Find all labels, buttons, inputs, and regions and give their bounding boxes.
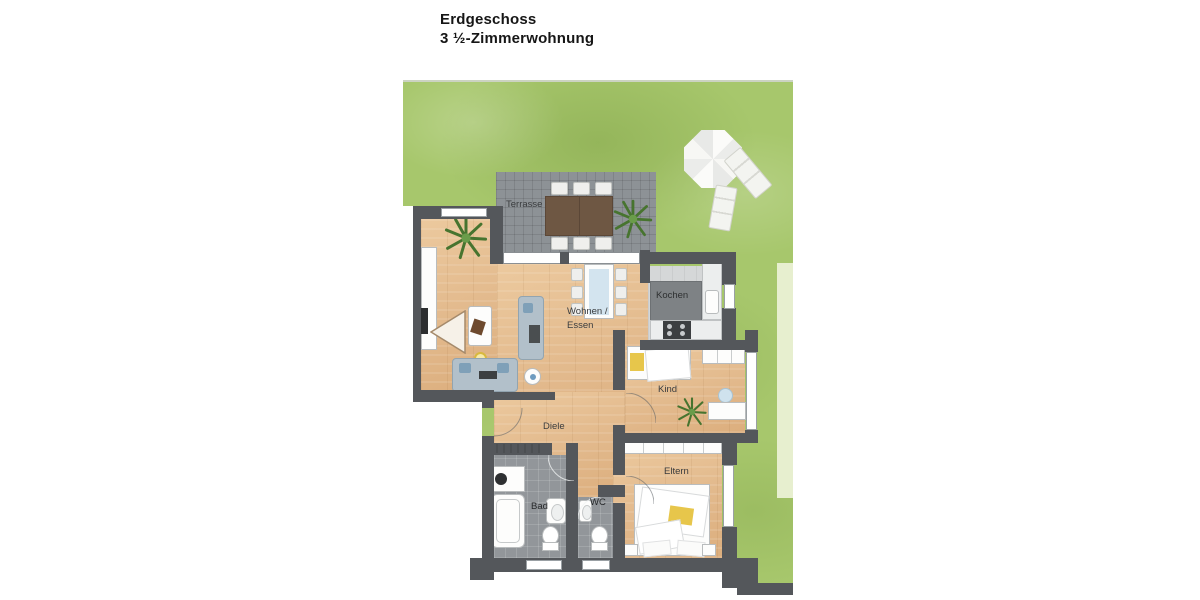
bathtub	[491, 494, 525, 548]
label-eltern: Eltern	[664, 466, 689, 477]
dining-chair	[615, 286, 627, 299]
tv-cone	[430, 310, 466, 354]
desk	[708, 402, 746, 420]
label-terrasse: Terrasse	[506, 199, 542, 210]
stove	[663, 321, 691, 339]
terrace-chair	[595, 182, 612, 195]
wall	[493, 392, 555, 400]
wall	[722, 252, 736, 285]
wall	[722, 443, 737, 465]
kitchen-sink	[705, 290, 719, 314]
bath-door-swing	[548, 455, 574, 481]
terrace-sliding-door	[503, 252, 640, 264]
label-kind: Kind	[658, 384, 677, 395]
label-kochen: Kochen	[656, 290, 688, 301]
chaise-longue	[518, 296, 544, 360]
garden-path	[777, 263, 793, 498]
wall	[470, 558, 494, 580]
coat-rack	[496, 444, 540, 453]
terrace-chair	[573, 182, 590, 195]
wall	[613, 433, 758, 443]
terrace-chair	[551, 182, 568, 195]
wall	[490, 206, 503, 264]
door-mullion	[560, 252, 569, 264]
side-table	[524, 368, 541, 385]
garden-wall	[737, 583, 793, 595]
parents-window	[723, 465, 734, 527]
toilet	[590, 526, 608, 550]
wall	[613, 330, 625, 390]
wall	[613, 503, 625, 558]
plant	[443, 215, 489, 261]
child-bed	[627, 346, 691, 380]
wall	[482, 390, 494, 408]
desk-chair	[718, 388, 733, 403]
dining-chair	[615, 303, 627, 316]
wall	[745, 330, 758, 352]
wall	[482, 436, 494, 578]
plan-title-line2: 3 ½-Zimmerwohnung	[440, 29, 594, 48]
terrace-chair	[595, 237, 612, 250]
nightstand	[624, 544, 638, 556]
label-diele: Diele	[543, 421, 565, 432]
dining-chair	[571, 286, 583, 299]
nightstand	[702, 544, 716, 556]
washing-machine	[491, 466, 525, 492]
tv	[421, 308, 428, 334]
sofa	[452, 358, 518, 392]
label-wohnen-essen-line2: Essen	[567, 320, 593, 331]
plant	[676, 396, 708, 428]
toilet	[541, 526, 559, 550]
terrace-chair	[573, 237, 590, 250]
washbasin	[546, 498, 566, 524]
wall	[722, 308, 736, 348]
wall	[413, 390, 493, 402]
entrance-door-swing	[494, 408, 523, 437]
kitchen-window	[724, 284, 735, 309]
label-wc: WC	[590, 497, 606, 508]
wall	[598, 485, 625, 497]
wc-window	[582, 560, 610, 570]
label-wohnen-essen-line1: Wohnen /	[567, 306, 608, 317]
wall	[745, 430, 758, 443]
plant	[612, 198, 654, 240]
mask-bottom-right	[737, 595, 793, 600]
dining-chair	[615, 268, 627, 281]
plan-title: Erdgeschoss 3 ½-Zimmerwohnung	[440, 10, 594, 48]
wall	[413, 206, 421, 402]
bath-window	[526, 560, 562, 570]
child-door-swing	[626, 393, 656, 423]
label-bad: Bad	[531, 501, 548, 512]
kitchen-island	[650, 281, 702, 321]
plan-title-line1: Erdgeschoss	[440, 10, 594, 29]
child-window	[746, 352, 757, 430]
window	[441, 208, 487, 217]
mask-bottom	[480, 572, 737, 600]
terrace-table	[545, 196, 613, 236]
dining-chair	[571, 268, 583, 281]
wall	[722, 527, 737, 558]
terrace-chair	[551, 237, 568, 250]
parents-door-swing	[626, 476, 654, 504]
floorplan-page: Erdgeschoss 3 ½-Zimmerwohnung	[0, 0, 1200, 600]
